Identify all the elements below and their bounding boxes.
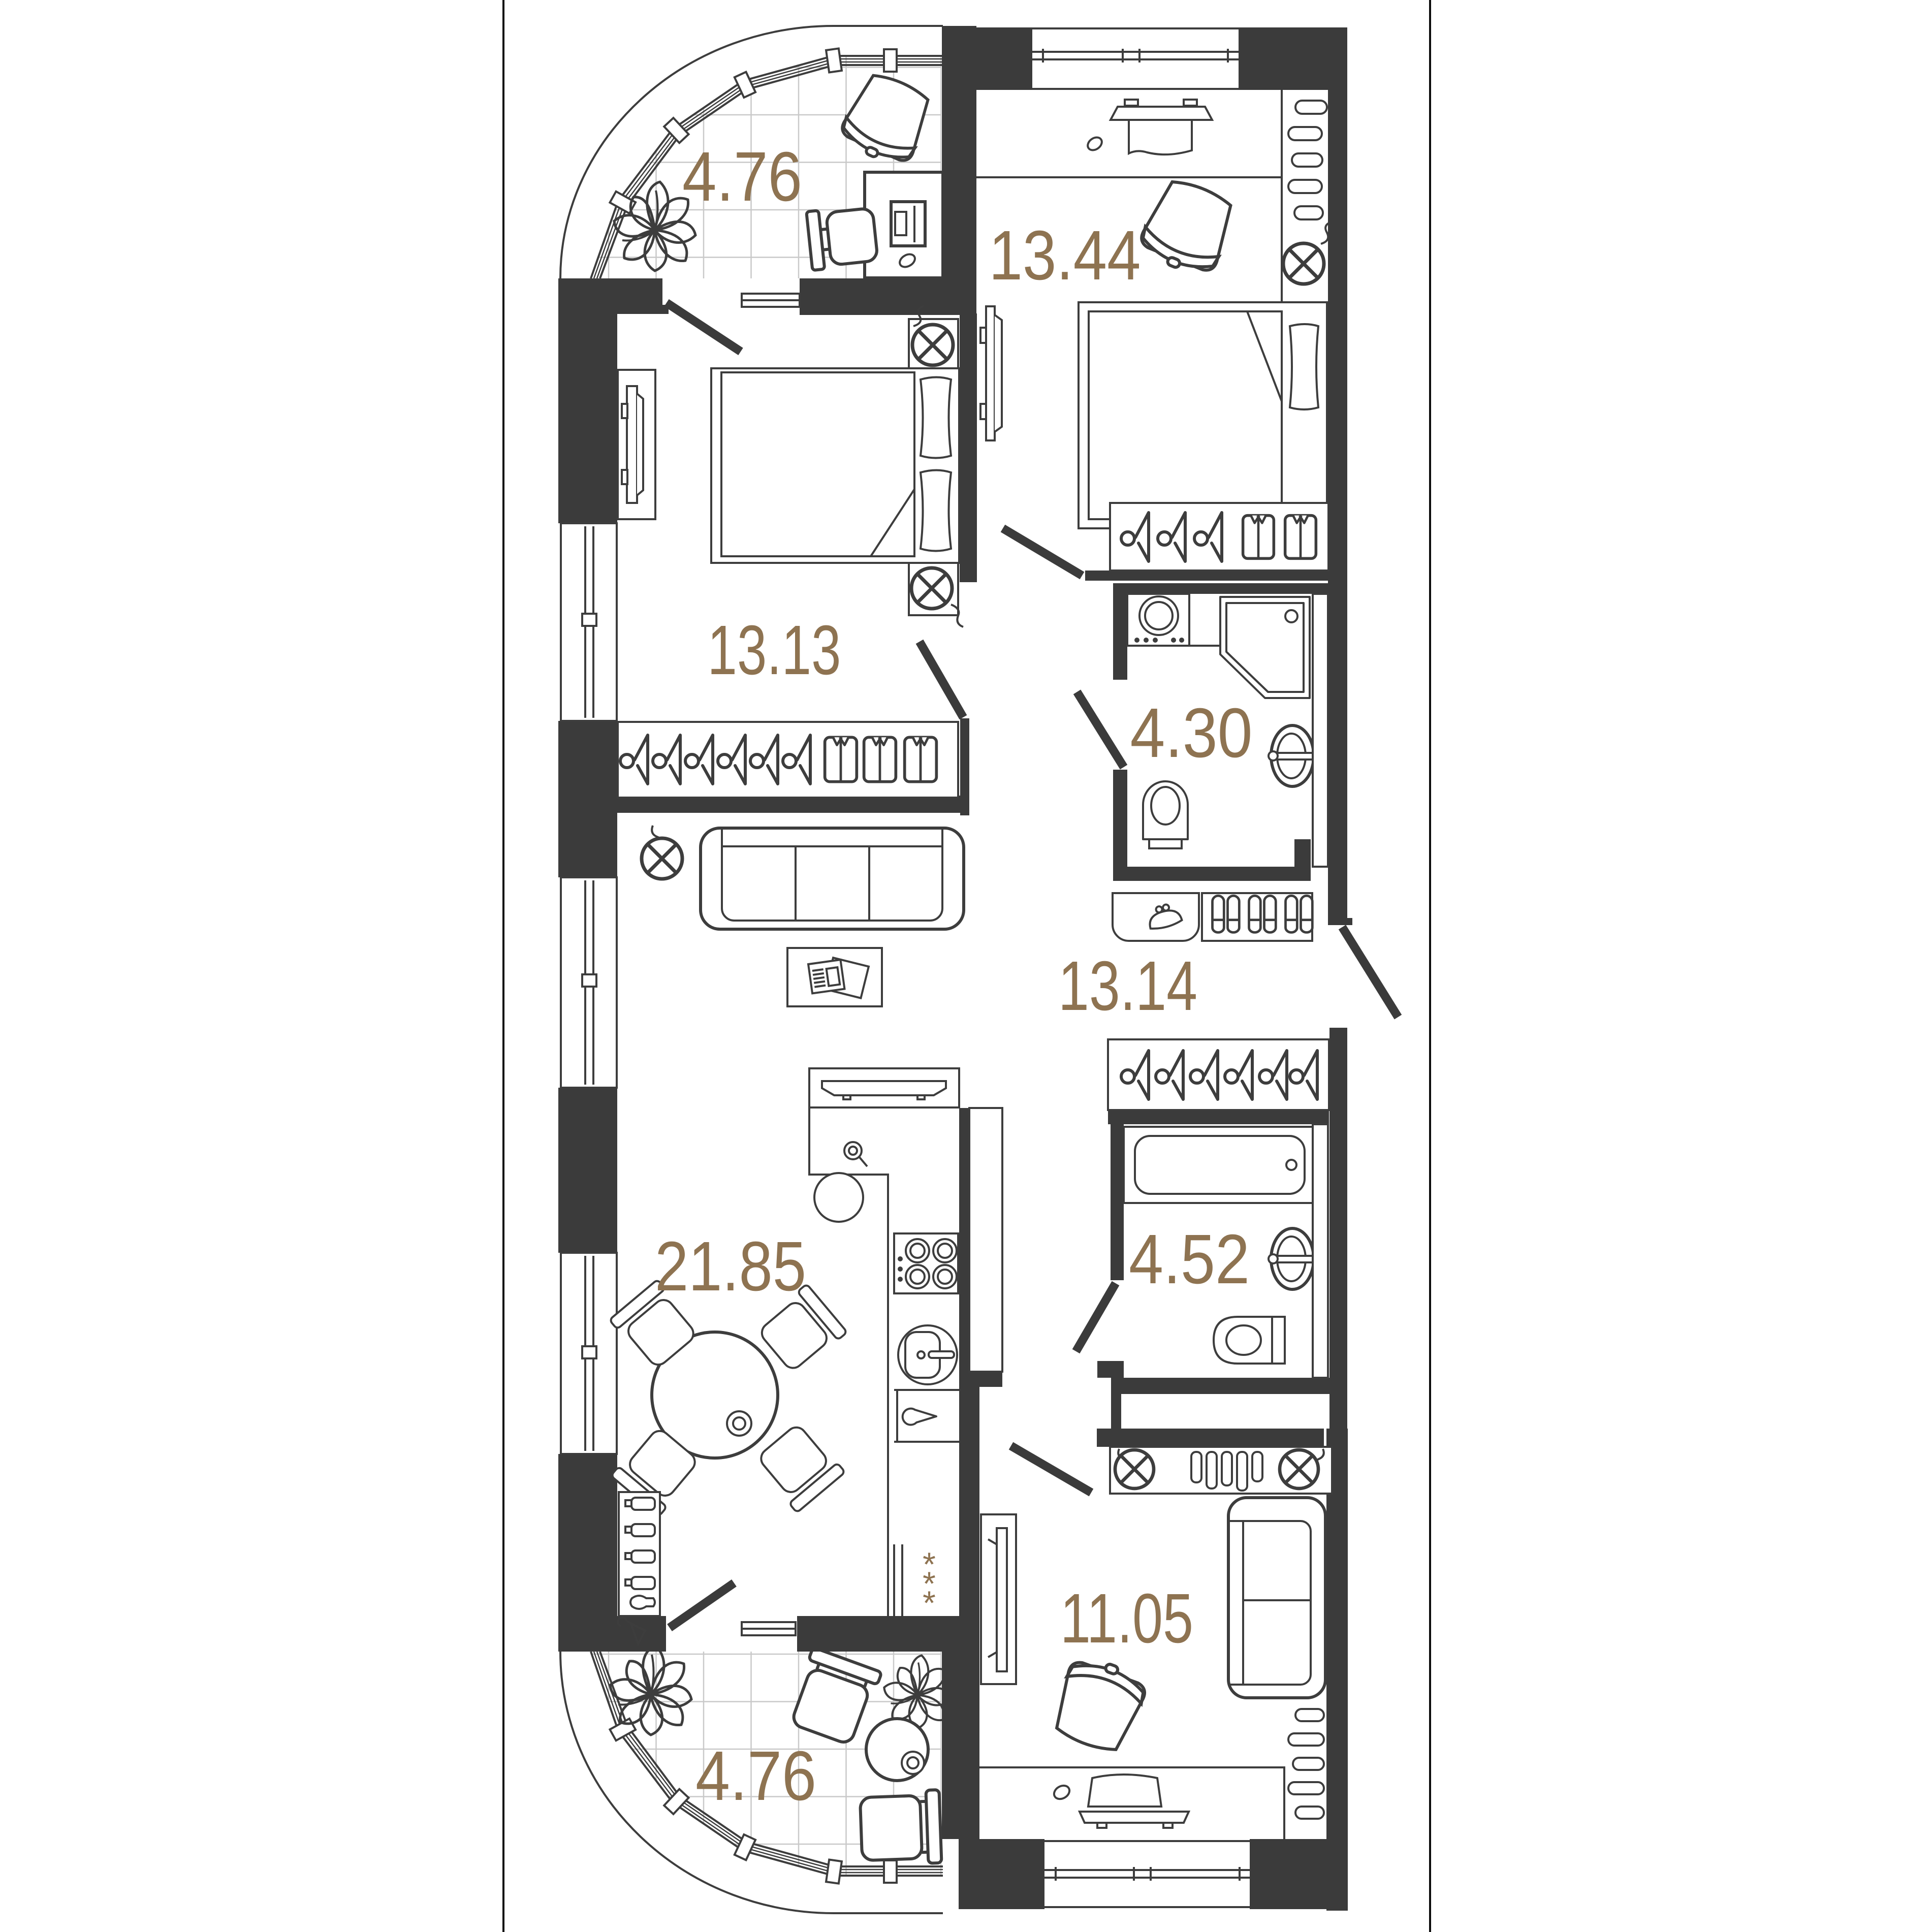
svg-text:4.30: 4.30 — [1130, 694, 1253, 772]
svg-text:4.52: 4.52 — [1129, 1220, 1250, 1298]
svg-text:4.76: 4.76 — [682, 138, 802, 216]
svg-text:11.05: 11.05 — [1060, 1579, 1193, 1658]
svg-text:13.14: 13.14 — [1058, 947, 1197, 1025]
svg-text:4.76: 4.76 — [695, 1737, 816, 1815]
svg-text:21.85: 21.85 — [655, 1227, 806, 1306]
svg-text:13.13: 13.13 — [708, 611, 841, 689]
svg-text:*: * — [923, 1584, 936, 1622]
svg-text:13.44: 13.44 — [989, 216, 1141, 295]
